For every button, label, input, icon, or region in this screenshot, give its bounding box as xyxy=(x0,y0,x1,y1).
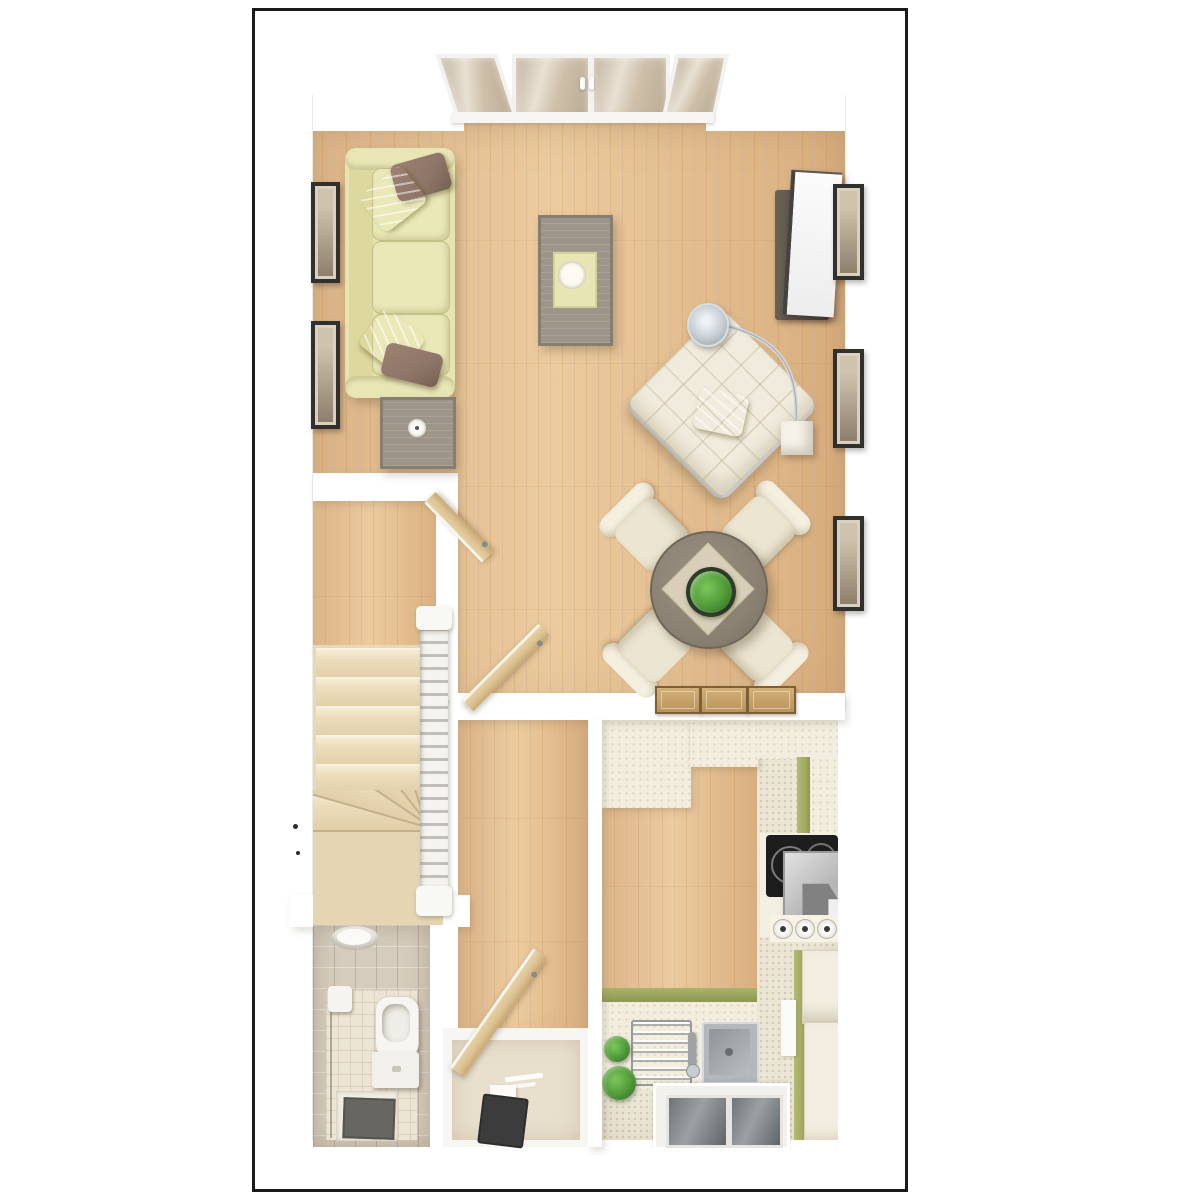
side-table-bowl-dot xyxy=(415,426,419,430)
picture-art xyxy=(318,328,333,422)
toilet-seat-inner xyxy=(382,1004,410,1042)
bay-sill xyxy=(452,112,714,123)
wall-right-kitchen xyxy=(838,710,875,1147)
arc-lamp-base xyxy=(781,421,813,455)
toilet-roll-holder xyxy=(328,986,352,1012)
coffee-table-bowl xyxy=(558,261,586,289)
wall-left-exterior xyxy=(285,95,313,1167)
kitchen-worktop-left-block xyxy=(602,720,691,808)
kitchen-plant-small xyxy=(604,1036,630,1062)
kitchen-worktop-right xyxy=(810,757,838,833)
render-dot-1 xyxy=(293,824,298,829)
picture-art xyxy=(840,191,857,273)
window-pane-left xyxy=(666,1095,729,1148)
kitchen-cabinet-green-front xyxy=(602,988,757,1002)
side-table xyxy=(380,397,456,469)
sofa-cushion-2 xyxy=(372,241,450,314)
kitchen-window xyxy=(653,1083,790,1150)
picture-frame-right-1 xyxy=(833,184,864,280)
french-door-handle-left xyxy=(580,77,585,90)
doormat xyxy=(477,1093,529,1148)
banister-newel-top xyxy=(416,606,452,630)
kitchen-cabinet-green-right xyxy=(797,757,810,833)
picture-art xyxy=(840,523,857,604)
render-dot-2 xyxy=(296,851,300,855)
stair-banister xyxy=(420,615,448,912)
sink-drain-icon xyxy=(725,1048,733,1056)
kitchen-worktop-top-band xyxy=(690,720,758,767)
picture-art xyxy=(318,189,333,276)
wall-tray-3 xyxy=(747,686,796,714)
appliance-panel xyxy=(781,1000,796,1056)
picture-art xyxy=(840,356,857,441)
hob-control-knob-1 xyxy=(773,919,793,939)
sink-bowl xyxy=(702,1022,759,1084)
hob-control-knob-2 xyxy=(795,919,815,939)
wall-tray-2 xyxy=(700,686,748,714)
window-pane-right xyxy=(729,1095,783,1148)
wc-basin-bowl xyxy=(337,929,371,945)
french-door-handle-right xyxy=(589,77,594,90)
sink-tap-head xyxy=(686,1064,700,1078)
sink-tap xyxy=(688,1032,696,1068)
banister-newel-bottom xyxy=(416,886,452,916)
wall-hall-kitchen xyxy=(588,720,602,1147)
kitchen-worktop-top-right xyxy=(757,720,845,759)
wall-tray-1 xyxy=(655,686,701,714)
picture-frame-left-2 xyxy=(311,321,340,429)
picture-frame-left-1 xyxy=(311,182,340,283)
coffee-table xyxy=(538,215,613,346)
picture-frame-right-3 xyxy=(833,516,864,611)
hob-control-knob-3 xyxy=(817,919,837,939)
arc-lamp-shade xyxy=(687,303,729,347)
toilet-flush-button xyxy=(392,1066,401,1072)
tray-inner xyxy=(706,691,742,709)
kitchen-plant-large xyxy=(602,1066,636,1100)
sink-drainer xyxy=(631,1020,692,1086)
picture-frame-right-2 xyxy=(833,349,864,448)
dining-centrepiece-plant xyxy=(686,567,736,617)
tray-inner xyxy=(753,691,790,709)
floor-plan-page xyxy=(0,0,1200,1200)
wc-mat xyxy=(342,1097,395,1140)
tray-inner xyxy=(661,691,695,709)
wc-shower-screen xyxy=(330,992,332,1138)
wc-room xyxy=(313,925,430,1147)
